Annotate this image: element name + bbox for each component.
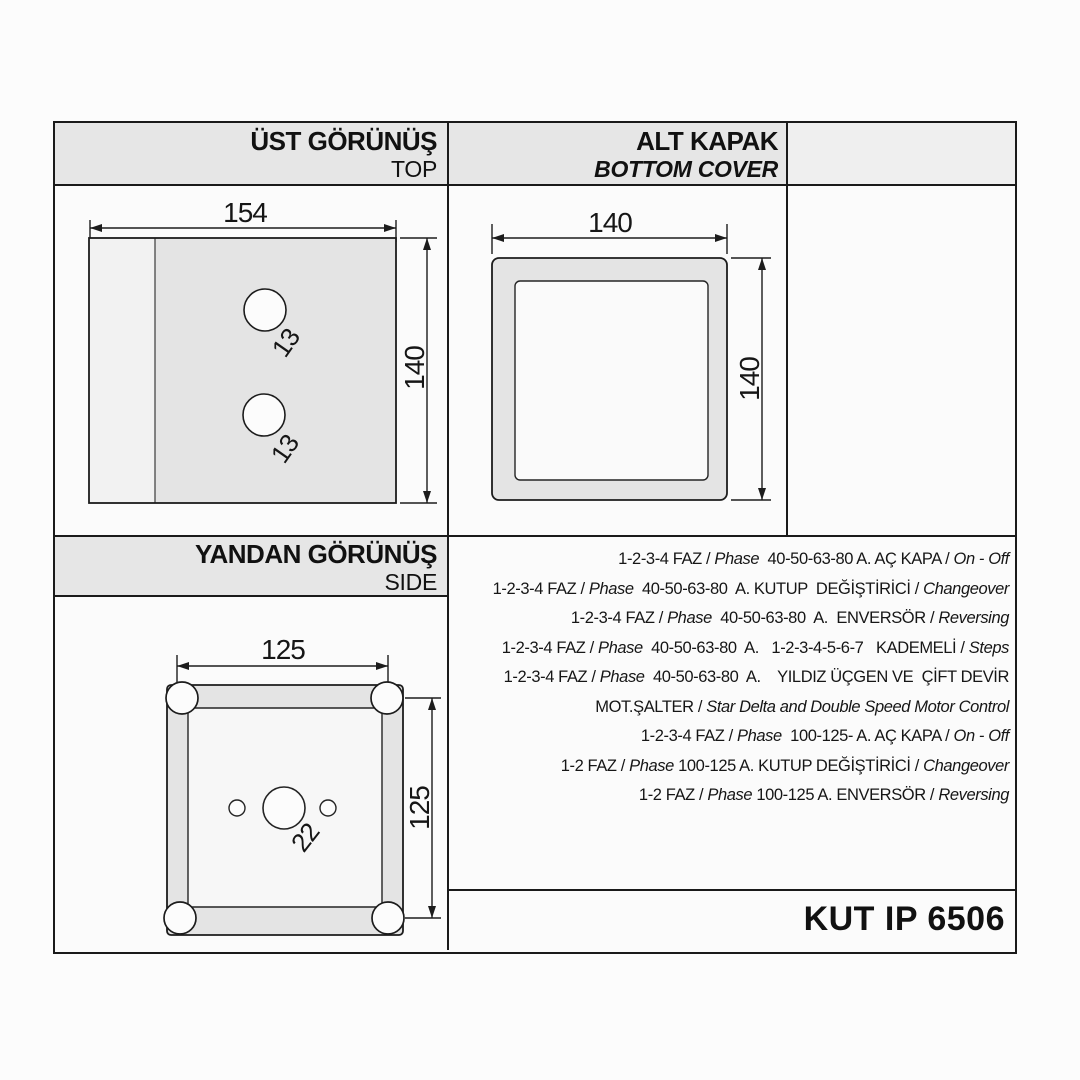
top-view-cell: 154 13 13 140 [55,186,449,535]
side-view-drawing: 125 22 [55,597,447,948]
empty-cell [788,186,1015,535]
side-view-small-hole-left [229,800,245,816]
top-view-width-label: 154 [223,197,267,228]
side-view-title-en: SIDE [55,569,437,595]
spec-line: 1-2 FAZ / Phase 100-125 A. ENVERSÖR / Re… [449,781,1009,811]
bottom-cover-header: ALT KAPAK BOTTOM COVER [449,123,788,186]
catalog-page: ÜST GÖRÜNÜŞ TOP ALT KAPAK BOTTOM COVER 1… [0,0,1080,1080]
side-view-corner-circle [372,902,404,934]
bottom-cover-drawing: 140 140 [449,186,786,533]
bottom-cover-height-label: 140 [734,357,765,401]
side-view-cell: 125 22 [55,597,449,950]
side-view-title-tr: YANDAN GÖRÜNÜŞ [55,539,437,569]
bottom-cover-inner [515,281,708,480]
top-view-title-en: TOP [55,156,437,182]
side-view-height-label: 125 [404,786,435,830]
bottom-cover-width-label: 140 [588,207,632,238]
bottom-cover-cell: 140 140 [449,186,788,535]
spec-line: 1-2-3-4 FAZ / Phase 40-50-63-80 A. ENVER… [449,604,1009,634]
side-view-width-label: 125 [261,634,305,665]
header-empty-cell [788,123,1015,186]
spec-sheet-table: ÜST GÖRÜNÜŞ TOP ALT KAPAK BOTTOM COVER 1… [53,121,1017,954]
spec-line: 1-2-3-4 FAZ / Phase 40-50-63-80 A. AÇ KA… [449,545,1009,575]
side-view-header: YANDAN GÖRÜNÜŞ SIDE [55,537,449,597]
top-view-body-main [155,238,396,503]
bottom-cover-title-en: BOTTOM COVER [449,156,778,182]
side-view-corner-circle [166,682,198,714]
spec-lines: 1-2-3-4 FAZ / Phase 40-50-63-80 A. AÇ KA… [449,535,1015,889]
side-view-small-hole-right [320,800,336,816]
spec-line: MOT.ŞALTER / Star Delta and Double Speed… [449,693,1009,723]
spec-line: 1-2-3-4 FAZ / Phase 40-50-63-80 A. 1-2-3… [449,634,1009,664]
spec-line: 1-2-3-4 FAZ / Phase 40-50-63-80 A. YILDI… [449,663,1009,693]
spec-line: 1-2-3-4 FAZ / Phase 100-125- A. AÇ KAPA … [449,722,1009,752]
spec-line: 1-2 FAZ / Phase 100-125 A. KUTUP DEĞİŞTİ… [449,752,1009,782]
top-view-header: ÜST GÖRÜNÜŞ TOP [55,123,449,186]
side-view-corner-circle [164,902,196,934]
bottom-cover-title-tr: ALT KAPAK [449,126,778,156]
spec-line: 1-2-3-4 FAZ / Phase 40-50-63-80 A. KUTUP… [449,575,1009,605]
side-view-corner-circle [371,682,403,714]
top-view-height-label: 140 [399,346,430,390]
top-view-title-tr: ÜST GÖRÜNÜŞ [55,126,437,156]
top-view-drawing: 154 13 13 140 [55,186,447,533]
product-code: KUT IP 6506 [449,891,1015,950]
